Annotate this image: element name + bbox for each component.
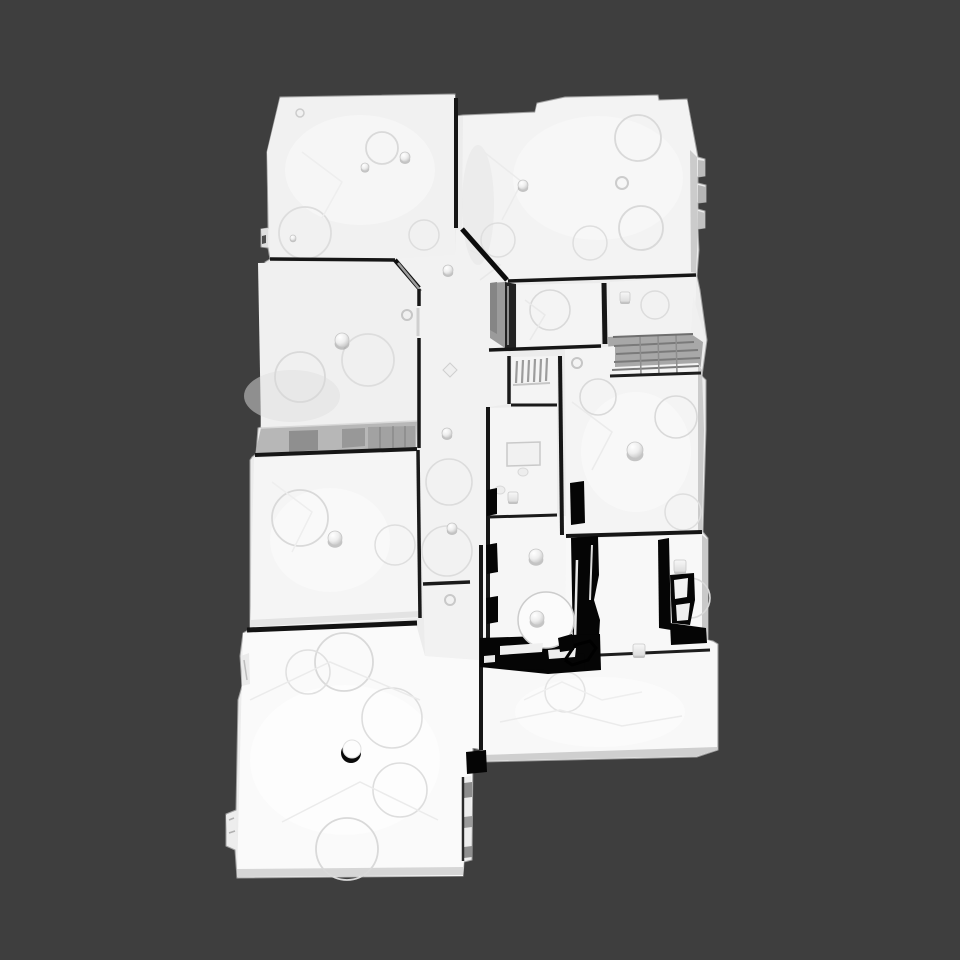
cube-2 [508, 492, 518, 504]
gap-line-c2-right [418, 450, 420, 618]
room-small-2 [610, 277, 696, 336]
left-bump-2 [226, 811, 237, 847]
glitch-patch-8 [486, 543, 498, 574]
sphere-1 [400, 152, 411, 164]
glitch-patch-1 [570, 481, 585, 525]
glitch-white-5 [676, 603, 690, 621]
glitch-patch-10 [466, 750, 487, 774]
sphere-2 [361, 163, 369, 173]
gap-line-g-e [560, 356, 562, 535]
door-slot [505, 282, 516, 348]
highlight-bottom-right [515, 677, 685, 747]
gap-line-corridor-f [423, 582, 470, 584]
gap-line-a-bottom [270, 259, 395, 260]
sphere-8 [335, 333, 350, 350]
sliver-mark-2 [464, 816, 472, 828]
stairs-streak-2 [658, 335, 659, 375]
highlight-top-right [513, 116, 683, 240]
side-face-top-right [690, 150, 698, 273]
sphere-11 [530, 611, 545, 628]
edge-tab-3 [698, 211, 705, 229]
stairs-streak-3 [676, 335, 677, 374]
highlight-top-left [285, 115, 435, 225]
glitch-patch-9 [486, 596, 498, 624]
sphere-9 [328, 531, 343, 548]
wall-wedge-dark [490, 282, 497, 334]
glitch-patch-4 [658, 538, 671, 630]
cabinet-panel-3 [368, 426, 415, 449]
sphere-5 [442, 428, 453, 440]
glitch-patch-7 [487, 488, 497, 516]
edge-tab-2 [698, 185, 706, 203]
cube-1 [620, 292, 630, 304]
cube-4 [674, 560, 686, 574]
scene-svg [0, 0, 960, 960]
mesh-viewer-window [0, 0, 960, 960]
gap-line-g-bottom [489, 515, 557, 517]
gap-line-d1-d2 [604, 283, 605, 344]
cabinet-panel-1 [289, 430, 318, 452]
floor-hole [343, 740, 361, 758]
cabinet-panel-2 [342, 428, 365, 448]
glitch-white-3 [484, 655, 495, 663]
edge-tab-left-mark [262, 235, 266, 244]
sphere-10 [529, 549, 544, 566]
cube-3 [633, 644, 645, 658]
sphere-7 [627, 442, 644, 461]
glitch-white-4 [674, 578, 688, 599]
edge-tab-1 [698, 160, 705, 177]
sphere-3 [518, 180, 529, 192]
sliver-mark-1 [464, 782, 472, 798]
sliver-mark-3 [464, 846, 472, 858]
small-blob-1 [518, 468, 528, 476]
stairs-streak-1 [640, 336, 641, 375]
viewport-3d[interactable] [0, 0, 960, 960]
sphere-4 [443, 265, 454, 277]
bed-outline [507, 442, 540, 466]
sphere-6 [447, 523, 458, 535]
sphere-12 [290, 235, 296, 242]
